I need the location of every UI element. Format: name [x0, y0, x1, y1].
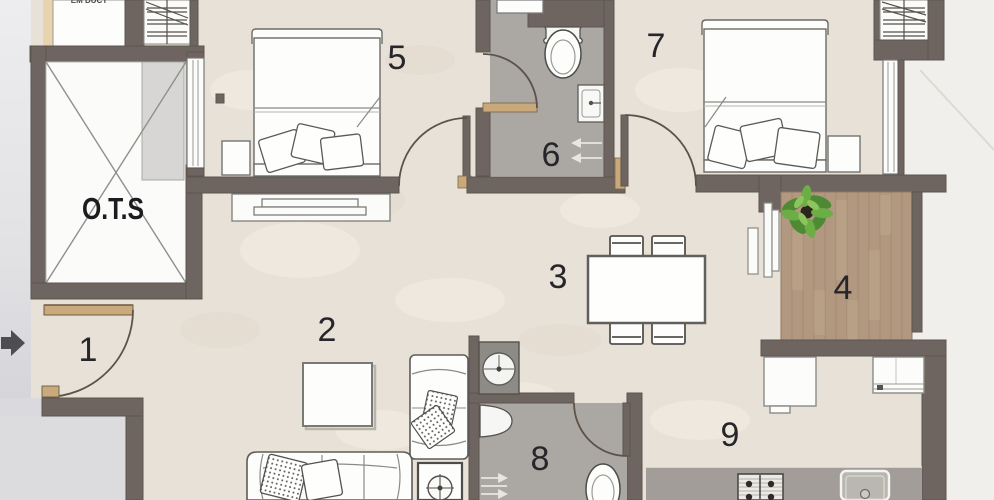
svg-text:3: 3 — [549, 258, 568, 296]
svg-text:1: 1 — [79, 331, 98, 369]
svg-text:2: 2 — [318, 311, 337, 349]
svg-text:7: 7 — [647, 27, 666, 65]
svg-text:6: 6 — [542, 136, 561, 174]
svg-text:EM DUCT: EM DUCT — [71, 0, 108, 5]
svg-text:O.T.S: O.T.S — [82, 191, 144, 226]
svg-text:5: 5 — [388, 39, 407, 77]
svg-text:8: 8 — [531, 440, 550, 478]
svg-text:9: 9 — [721, 416, 740, 454]
svg-text:4: 4 — [834, 269, 853, 307]
